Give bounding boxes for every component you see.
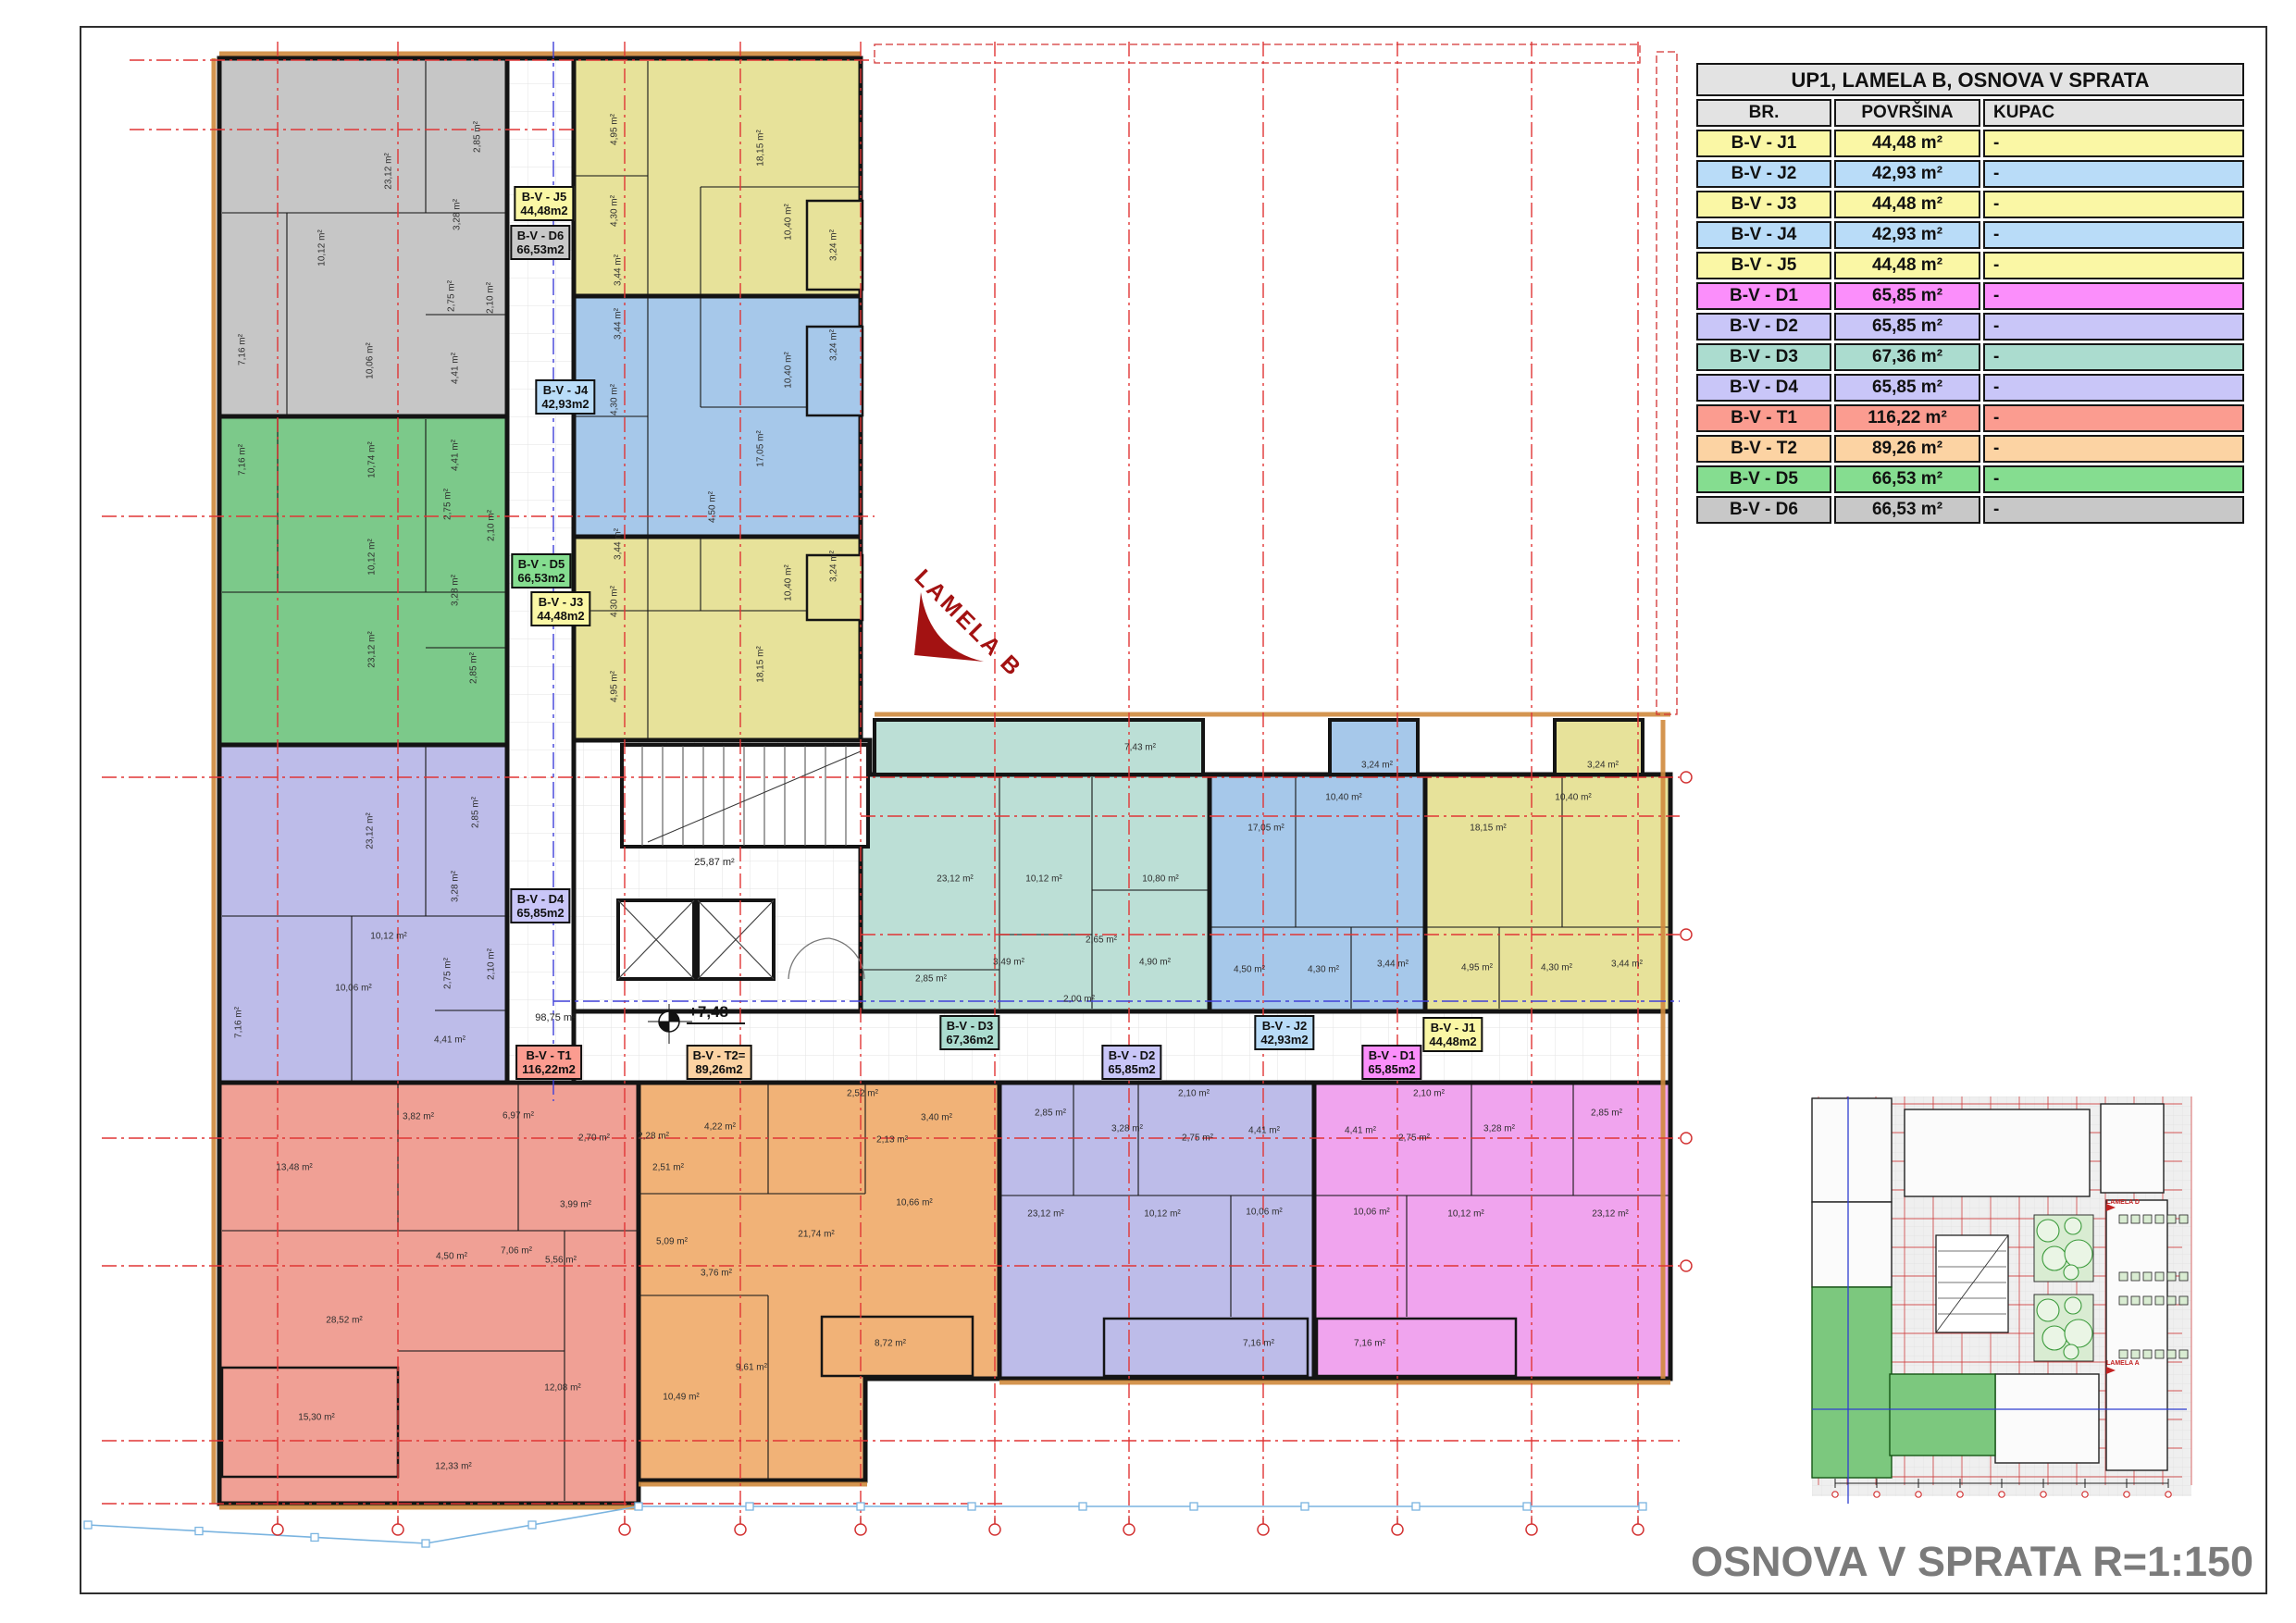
room-area-label: 2,85 m² — [469, 652, 479, 684]
room-area-label: 10,12 m² — [1144, 1209, 1180, 1220]
apartment-label-j4: B-V - J442,93m2 — [535, 379, 595, 415]
apartment-label-t2: B-V - T2=89,26m2 — [687, 1045, 752, 1080]
room-area-label: 4,50 m² — [1234, 965, 1265, 975]
corridor-area-label: 98,75 m² — [535, 1012, 575, 1023]
legend-cell-kupac: - — [1983, 404, 2244, 432]
room-area-label: 2,75 m² — [443, 489, 453, 520]
legend-row: B-V - J442,93 m²- — [1696, 221, 2244, 249]
room-area-label: 10,06 m² — [335, 984, 371, 994]
level-marker: +7,48 — [687, 1003, 745, 1024]
apartment-label-j5: B-V - J544,48m2 — [514, 186, 574, 221]
room-area-label: 3,44 m² — [614, 308, 624, 340]
room-area-label: 10,12 m² — [370, 932, 406, 942]
room-area-label: 10,49 m² — [663, 1393, 699, 1403]
room-area-label: 5,09 m² — [656, 1237, 688, 1247]
room-area-label: 2,75 m² — [1398, 1134, 1430, 1144]
room-area-label: 17,05 m² — [1247, 824, 1284, 834]
room-area-label: 4,50 m² — [436, 1252, 467, 1262]
legend-row: B-V - T289,26 m²- — [1696, 435, 2244, 463]
legend-row: B-V - D165,85 m²- — [1696, 282, 2244, 310]
room-area-label: 10,40 m² — [784, 352, 794, 388]
legend-cell-br: B-V - T1 — [1696, 404, 1831, 432]
room-area-label: 23,12 m² — [937, 874, 973, 885]
apartment-label-j1: B-V - J144,48m2 — [1422, 1017, 1483, 1052]
legend-cell-br: B-V - D6 — [1696, 496, 1831, 524]
legend-row: B-V - D566,53 m²- — [1696, 465, 2244, 493]
room-area-label: 10,12 m² — [367, 539, 378, 575]
legend-cell-br: B-V - D5 — [1696, 465, 1831, 493]
room-area-label: 3,24 m² — [829, 229, 839, 261]
legend-row: B-V - J344,48 m²- — [1696, 191, 2244, 218]
room-area-label: 10,12 m² — [317, 229, 328, 266]
legend-row: B-V - D666,53 m²- — [1696, 496, 2244, 524]
room-area-label: 3,28 m² — [1483, 1124, 1515, 1134]
room-area-label: 6,97 m² — [503, 1111, 534, 1121]
legend-cell-kupac: - — [1983, 252, 2244, 279]
room-area-label: 4,30 m² — [610, 384, 620, 415]
legend-cell-br: B-V - T2 — [1696, 435, 1831, 463]
legend-cell-area: 44,48 m² — [1834, 130, 1980, 157]
room-area-label: 3,44 m² — [614, 254, 624, 286]
legend-cell-area: 42,93 m² — [1834, 221, 1980, 249]
room-area-label: 2,10 m² — [487, 510, 497, 541]
room-area-label: 2,10 m² — [486, 282, 496, 314]
room-area-label: 10,74 m² — [367, 441, 378, 477]
room-area-label: 3,24 m² — [829, 551, 839, 582]
legend-cell-kupac: - — [1983, 160, 2244, 188]
room-area-label: 3,40 m² — [921, 1113, 952, 1123]
room-area-label: 7,16 m² — [1354, 1339, 1385, 1349]
overview-lamela-d-label: LAMELA D — [2106, 1199, 2140, 1206]
room-area-label: 10,40 m² — [784, 564, 794, 601]
legend-cell-area: 42,93 m² — [1834, 160, 1980, 188]
legend-cell-area: 116,22 m² — [1834, 404, 1980, 432]
room-area-label: 3,24 m² — [1587, 761, 1619, 771]
legend-row: B-V - D465,85 m²- — [1696, 374, 2244, 402]
room-area-label: 17,05 m² — [756, 430, 766, 466]
room-area-label: 10,40 m² — [1325, 793, 1361, 803]
legend-cell-kupac: - — [1983, 343, 2244, 371]
room-area-label: 4,95 m² — [1461, 963, 1493, 973]
room-area-label: 13,48 m² — [276, 1163, 312, 1173]
legend-cell-kupac: - — [1983, 496, 2244, 524]
room-area-label: 7,43 m² — [1124, 743, 1156, 753]
apartment-label-d3: B-V - D367,36m2 — [939, 1015, 999, 1050]
room-area-label: 3,82 m² — [403, 1112, 434, 1122]
room-area-label: 2,75 m² — [443, 958, 453, 989]
legend-cell-br: B-V - D4 — [1696, 374, 1831, 402]
room-area-label: 4,30 m² — [1541, 963, 1572, 973]
room-area-label: 4,41 m² — [451, 353, 461, 384]
room-area-label: 23,12 m² — [1592, 1209, 1628, 1220]
legend-cell-area: 65,85 m² — [1834, 313, 1980, 341]
room-area-label: 3,44 m² — [1377, 960, 1409, 970]
room-area-label: 2,65 m² — [1086, 935, 1117, 946]
legend-cell-br: B-V - D2 — [1696, 313, 1831, 341]
room-area-label: 15,30 m² — [298, 1413, 334, 1423]
room-area-label: 7,16 m² — [1243, 1339, 1274, 1349]
apartment-label-d2: B-V - D265,85m2 — [1101, 1045, 1161, 1080]
room-area-label: 3,76 m² — [701, 1269, 732, 1279]
legend-title: UP1, LAMELA B, OSNOVA V SPRATA — [1696, 63, 2244, 96]
apartment-label-j3: B-V - J344,48m2 — [530, 591, 590, 626]
room-area-label: 4,41 m² — [451, 440, 461, 471]
room-area-label: 2,70 m² — [578, 1134, 610, 1144]
legend-cell-br: B-V - J3 — [1696, 191, 1831, 218]
room-area-label: 2,85 m² — [473, 121, 483, 153]
apartment-label-d4: B-V - D465,85m2 — [510, 888, 570, 923]
room-area-label: 3,44 m² — [1611, 960, 1643, 970]
apartment-label-j2: B-V - J242,93m2 — [1254, 1015, 1314, 1050]
room-area-label: 4,41 m² — [1248, 1126, 1280, 1136]
room-area-label: 7,16 m² — [238, 444, 248, 476]
room-area-label: 4,95 m² — [610, 671, 620, 702]
room-area-label: 10,06 m² — [1353, 1208, 1389, 1218]
legend-rows: B-V - J144,48 m²-B-V - J242,93 m²-B-V - … — [1696, 130, 2244, 524]
room-area-label: 4,41 m² — [1345, 1126, 1376, 1136]
legend-cell-area: 65,85 m² — [1834, 374, 1980, 402]
room-area-label: 2,13 m² — [876, 1135, 908, 1146]
legend-cell-kupac: - — [1983, 313, 2244, 341]
room-area-label: 2,10 m² — [1413, 1089, 1445, 1099]
legend-cell-area: 66,53 m² — [1834, 465, 1980, 493]
sheet-caption: OSNOVA V SPRATA R=1:150 — [1691, 1538, 2253, 1586]
room-area-label: 2,75 m² — [1182, 1134, 1213, 1144]
legend-cell-br: B-V - D3 — [1696, 343, 1831, 371]
room-area-label: 7,16 m² — [234, 1007, 244, 1038]
legend-cell-br: B-V - J1 — [1696, 130, 1831, 157]
room-area-label: 8,72 m² — [875, 1339, 906, 1349]
room-area-label: 2,52 m² — [847, 1089, 878, 1099]
overview-lamela-a-label: LAMELA A — [2106, 1360, 2140, 1367]
legend-row: B-V - J544,48 m²- — [1696, 252, 2244, 279]
room-area-label: 7,16 m² — [238, 334, 248, 365]
room-area-label: 9,61 m² — [736, 1363, 767, 1373]
legend-cell-kupac: - — [1983, 191, 2244, 218]
room-area-label: 5,56 m² — [545, 1256, 577, 1266]
room-area-label: 3,28 m² — [451, 871, 461, 902]
apartment-label-d5: B-V - D566,53m2 — [511, 553, 571, 588]
room-area-label: 2,75 m² — [447, 280, 457, 312]
room-area-label: 10,66 m² — [896, 1198, 932, 1208]
legend-column-header: KUPAC — [1983, 99, 2244, 127]
legend-row: B-V - T1116,22 m²- — [1696, 404, 2244, 432]
room-area-label: 23,12 m² — [367, 631, 378, 667]
room-area-label: 3,28 m² — [1111, 1124, 1143, 1134]
legend-cell-br: B-V - J5 — [1696, 252, 1831, 279]
room-area-label: 23,12 m² — [1027, 1209, 1063, 1220]
legend-cell-br: B-V - D1 — [1696, 282, 1831, 310]
room-area-label: 2,10 m² — [1178, 1089, 1210, 1099]
room-area-label: 10,06 m² — [366, 342, 376, 378]
room-area-label: 3,24 m² — [1361, 761, 1393, 771]
legend-row: B-V - D265,85 m²- — [1696, 313, 2244, 341]
room-area-label: 2,10 m² — [487, 948, 497, 980]
room-area-label: 10,40 m² — [784, 204, 794, 240]
room-area-label: 3,24 m² — [829, 329, 839, 361]
legend-cell-kupac: - — [1983, 435, 2244, 463]
room-area-label: 2,28 m² — [638, 1132, 669, 1142]
apartment-label-d6: B-V - D666,53m2 — [510, 225, 570, 260]
legend-cell-kupac: - — [1983, 130, 2244, 157]
room-area-label: 18,15 m² — [756, 646, 766, 682]
legend-cell-kupac: - — [1983, 465, 2244, 493]
room-area-label: 10,80 m² — [1142, 874, 1178, 885]
room-area-label: 10,12 m² — [1447, 1209, 1483, 1220]
legend-cell-kupac: - — [1983, 374, 2244, 402]
stair-area-label: 25,87 m² — [694, 857, 734, 868]
room-area-label: 4,30 m² — [610, 586, 620, 617]
legend-row: B-V - J242,93 m²- — [1696, 160, 2244, 188]
room-area-label: 10,40 m² — [1555, 793, 1591, 803]
legend-cell-br: B-V - J4 — [1696, 221, 1831, 249]
legend-table: UP1, LAMELA B, OSNOVA V SPRATA BR.POVRŠI… — [1696, 63, 2244, 524]
room-area-label: 18,15 m² — [756, 130, 766, 166]
legend-cell-kupac: - — [1983, 221, 2244, 249]
legend-column-header: POVRŠINA — [1834, 99, 1980, 127]
legend-cell-area: 89,26 m² — [1834, 435, 1980, 463]
room-area-label: 12,08 m² — [544, 1383, 580, 1394]
room-area-label: 3,44 m² — [614, 528, 624, 560]
apartment-label-t1: B-V - T1116,22m2 — [515, 1045, 582, 1080]
apartment-label-d1: B-V - D165,85m2 — [1361, 1045, 1421, 1080]
legend-row: B-V - D367,36 m²- — [1696, 343, 2244, 371]
room-area-label: 3,28 m² — [453, 199, 463, 230]
room-area-label: 4,90 m² — [1139, 958, 1171, 968]
room-area-label: 4,50 m² — [708, 491, 718, 523]
room-area-label: 10,06 m² — [1246, 1208, 1282, 1218]
room-area-label: 23,12 m² — [366, 812, 376, 849]
room-area-label: 12,33 m² — [435, 1462, 471, 1472]
legend-cell-br: B-V - J2 — [1696, 160, 1831, 188]
room-area-label: 2,00 m² — [1063, 995, 1095, 1005]
legend-cell-area: 66,53 m² — [1834, 496, 1980, 524]
room-area-label: 2,51 m² — [652, 1163, 684, 1173]
room-area-label: 4,41 m² — [434, 1035, 465, 1046]
room-area-label: 21,74 m² — [798, 1230, 834, 1240]
room-area-label: 2,85 m² — [1035, 1109, 1066, 1119]
legend-cell-area: 44,48 m² — [1834, 252, 1980, 279]
room-area-label: 4,22 m² — [704, 1122, 736, 1133]
room-area-label: 3,99 m² — [560, 1200, 591, 1210]
sheet: LAMELA B +7,48 98,75 m² 25,87 m² UP1, LA… — [0, 0, 2296, 1623]
room-area-label: 10,12 m² — [1025, 874, 1061, 885]
legend-cell-area: 67,36 m² — [1834, 343, 1980, 371]
legend-row: B-V - J144,48 m²- — [1696, 130, 2244, 157]
room-area-label: 23,12 m² — [384, 153, 394, 189]
room-area-label: 3,49 m² — [993, 958, 1024, 968]
room-area-label: 4,95 m² — [610, 114, 620, 145]
room-area-label: 18,15 m² — [1470, 824, 1506, 834]
room-area-label: 4,30 m² — [610, 195, 620, 227]
room-area-label: 2,85 m² — [471, 797, 481, 828]
room-area-label: 7,06 m² — [501, 1246, 532, 1257]
room-area-label: 4,30 m² — [1308, 965, 1339, 975]
legend-cell-kupac: - — [1983, 282, 2244, 310]
room-area-label: 3,28 m² — [451, 575, 461, 606]
room-area-label: 28,52 m² — [326, 1316, 362, 1326]
legend-column-header: BR. — [1696, 99, 1831, 127]
room-area-label: 2,85 m² — [1591, 1109, 1622, 1119]
legend-cell-area: 65,85 m² — [1834, 282, 1980, 310]
legend-header-row: BR.POVRŠINAKUPAC — [1696, 99, 2244, 127]
legend-cell-area: 44,48 m² — [1834, 191, 1980, 218]
room-area-label: 2,85 m² — [915, 974, 947, 985]
